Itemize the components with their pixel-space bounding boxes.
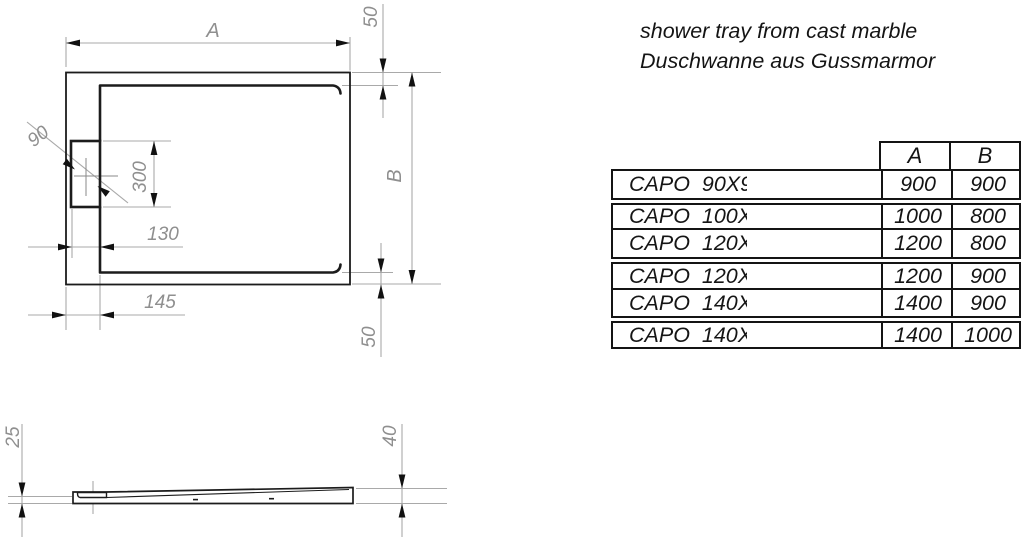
dim-label-top-50: 50 (361, 6, 382, 28)
dim-label-bottom-50: 50 (359, 326, 380, 348)
value-a: 1400 (881, 290, 953, 316)
value-b: 1000 (951, 323, 1023, 347)
value-b: 800 (951, 230, 1023, 257)
side-view-drawing: 25 40 (3, 424, 447, 537)
tray-outer-outline (66, 73, 350, 285)
top-view-drawing: A B 50 50 300 90 130 145 (24, 4, 441, 357)
dim-label-B: B (384, 169, 406, 182)
value-a: 1000 (881, 205, 953, 228)
dim-label-25: 25 (3, 426, 24, 449)
value-a: 900 (881, 171, 953, 198)
title-line-english: shower tray from cast marble (640, 16, 1000, 46)
model-name: CAPO 120X90 (629, 264, 747, 288)
model-name: CAPO 100X80 (629, 205, 747, 228)
drawing-title: shower tray from cast marble Duschwanne … (640, 16, 1000, 76)
model-name: CAPO 140X100 (629, 323, 747, 347)
value-a: 1200 (881, 230, 953, 257)
table-row: CAPO 90X90 900 900 (611, 169, 1021, 200)
value-b: 900 (951, 264, 1023, 288)
dimension-lines (27, 4, 441, 357)
size-table-header: A B (879, 141, 1021, 171)
arrowheads-top-view (52, 40, 415, 319)
value-b: 800 (951, 205, 1023, 228)
side-profile-outline (73, 488, 353, 504)
value-b: 900 (951, 171, 1023, 198)
table-row: CAPO 100X80 1000 800 (611, 203, 1021, 230)
model-name: CAPO 140X90 (629, 290, 747, 316)
value-b: 900 (951, 290, 1023, 316)
model-name: CAPO 90X90 (629, 171, 747, 198)
dim-label-145: 145 (144, 292, 176, 313)
value-a: 1200 (881, 264, 953, 288)
title-line-german: Duschwanne aus Gussmarmor (640, 46, 1000, 76)
dim-label-40: 40 (380, 425, 401, 447)
table-row: CAPO 140X90 1400 900 (611, 288, 1021, 318)
table-row: CAPO 120X80 1200 800 (611, 228, 1021, 259)
table-row: CAPO 120X90 1200 900 (611, 262, 1021, 290)
dim-label-90: 90 (24, 122, 54, 152)
dim-label-300: 300 (130, 161, 151, 193)
column-header-b: B (949, 143, 1019, 169)
drawing-sheet: A B 50 50 300 90 130 145 (0, 0, 1024, 538)
column-header-a: A (881, 143, 949, 169)
model-name: CAPO 120X80 (629, 230, 747, 257)
table-row: CAPO 140X100 1400 1000 (611, 321, 1021, 349)
dim-label-A: A (205, 20, 219, 42)
dim-label-130: 130 (147, 224, 179, 245)
value-a: 1400 (881, 323, 953, 347)
